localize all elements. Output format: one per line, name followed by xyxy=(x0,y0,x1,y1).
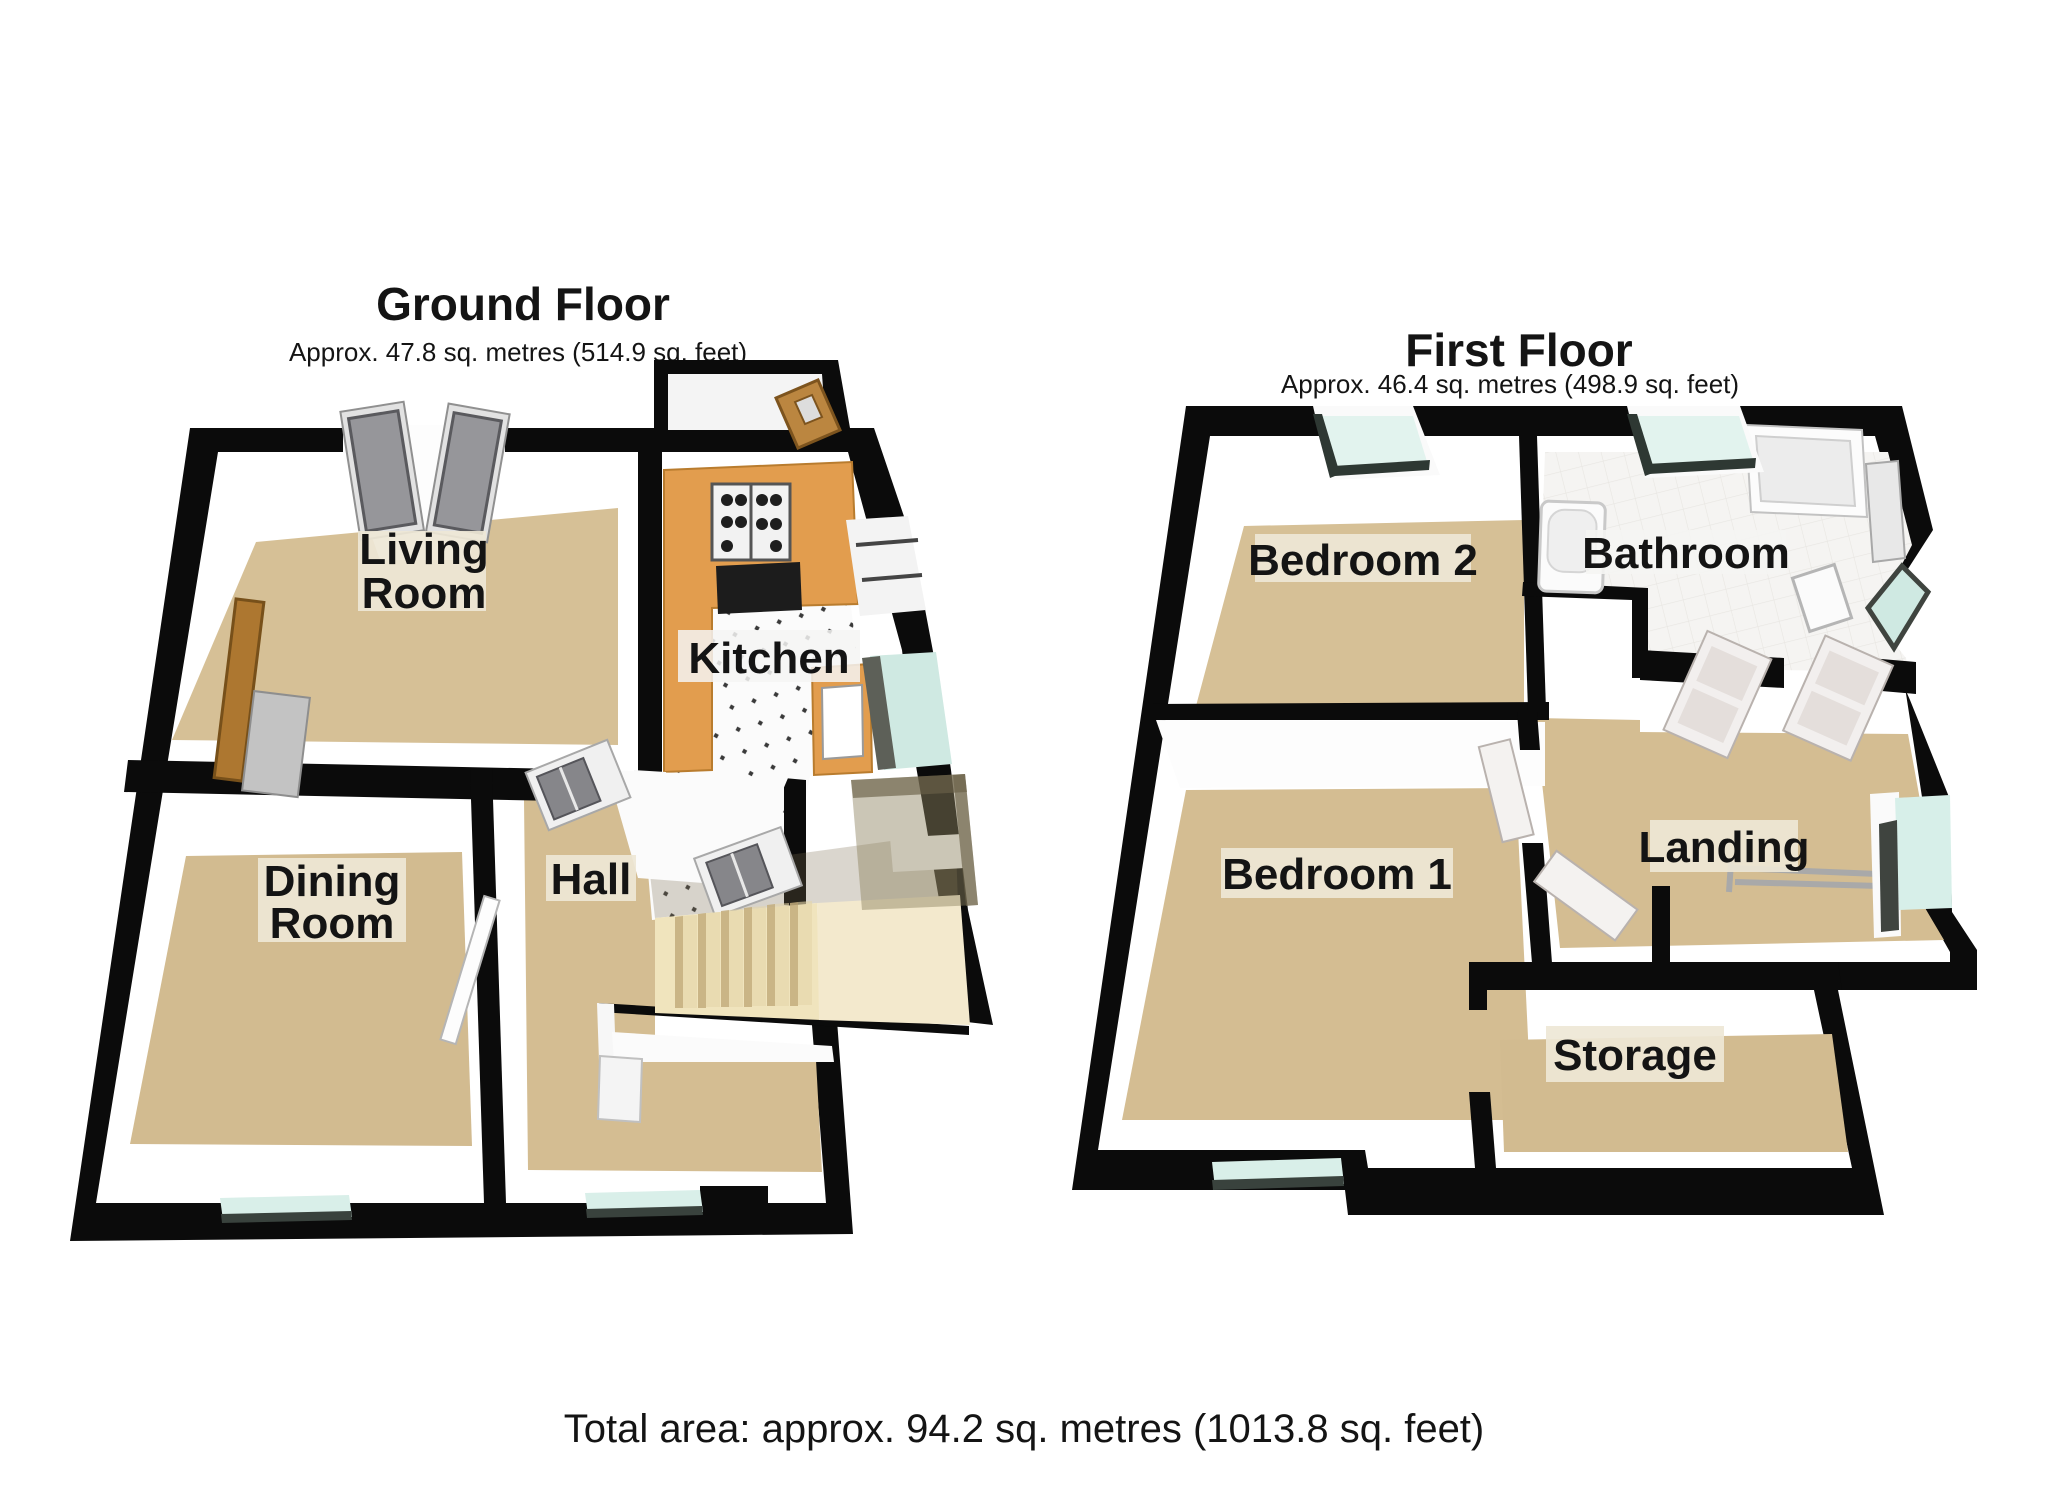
svg-text:Total area: approx. 94.2 sq. m: Total area: approx. 94.2 sq. metres (101… xyxy=(564,1407,1485,1451)
svg-text:Living: Living xyxy=(359,525,489,574)
svg-text:Approx. 46.4 sq. metres (498.9: Approx. 46.4 sq. metres (498.9 sq. feet) xyxy=(1281,369,1739,399)
svg-text:Landing: Landing xyxy=(1638,823,1809,872)
svg-text:Hall: Hall xyxy=(551,855,632,904)
svg-text:Room: Room xyxy=(270,899,395,948)
svg-text:Storage: Storage xyxy=(1553,1031,1717,1080)
svg-text:Room: Room xyxy=(362,569,487,618)
svg-text:Bathroom: Bathroom xyxy=(1582,529,1790,578)
svg-text:Bedroom 1: Bedroom 1 xyxy=(1222,850,1452,899)
svg-text:Bedroom 2: Bedroom 2 xyxy=(1248,536,1478,585)
svg-text:Kitchen: Kitchen xyxy=(688,634,849,683)
svg-text:Ground Floor: Ground Floor xyxy=(376,278,670,330)
